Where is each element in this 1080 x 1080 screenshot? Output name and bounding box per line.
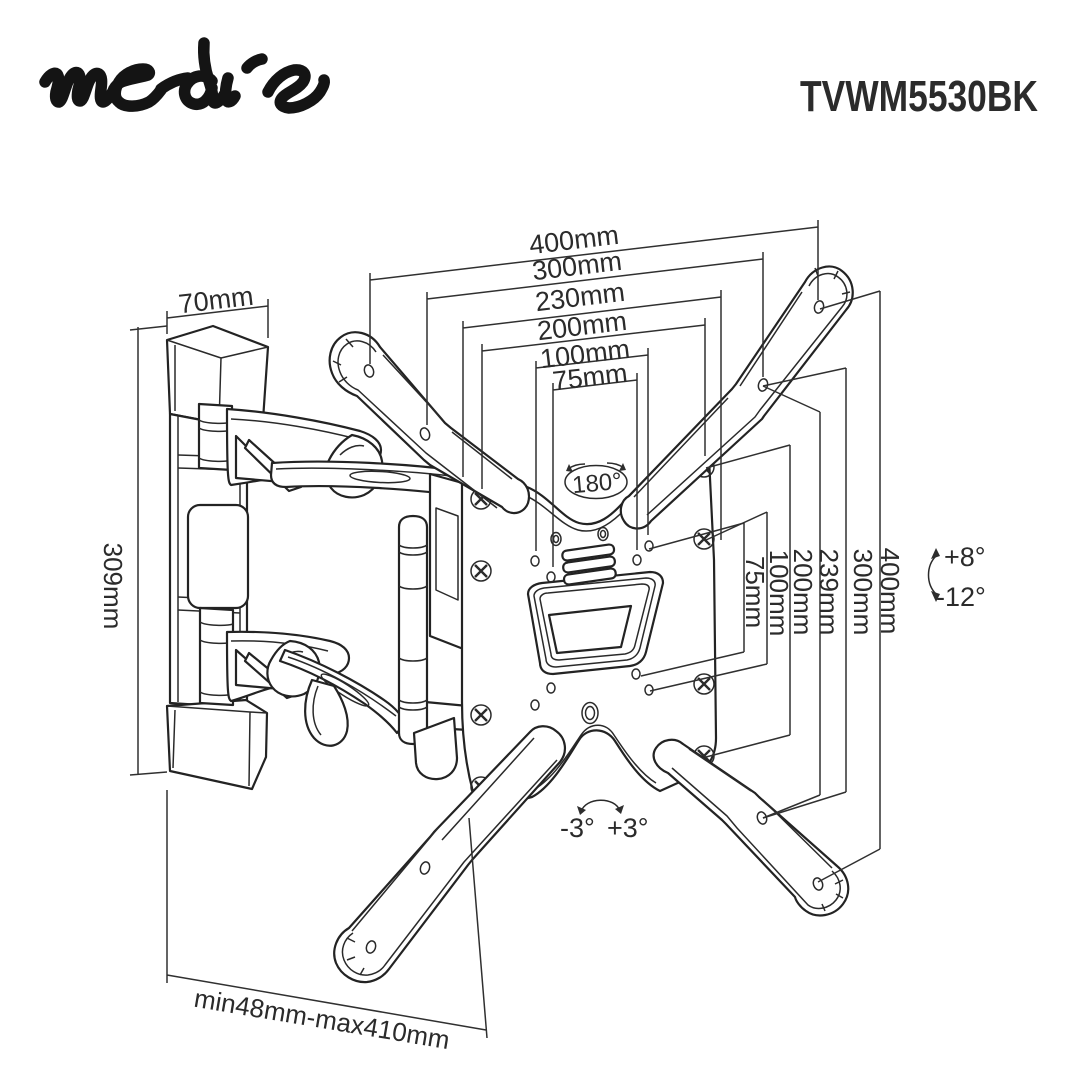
svg-text:239mm: 239mm <box>814 549 844 636</box>
svg-text:180°: 180° <box>571 468 623 499</box>
svg-text:-12°: -12° <box>936 582 986 612</box>
svg-text:+8°: +8° <box>944 542 986 572</box>
svg-text:309mm: 309mm <box>98 543 128 630</box>
svg-text:-3°: -3° <box>560 813 595 843</box>
svg-text:200mm: 200mm <box>788 549 818 636</box>
svg-text:+3°: +3° <box>607 813 649 843</box>
svg-text:TVWM5530BK: TVWM5530BK <box>800 72 1038 121</box>
svg-text:400mm: 400mm <box>875 548 905 635</box>
svg-text:300mm: 300mm <box>848 549 878 636</box>
